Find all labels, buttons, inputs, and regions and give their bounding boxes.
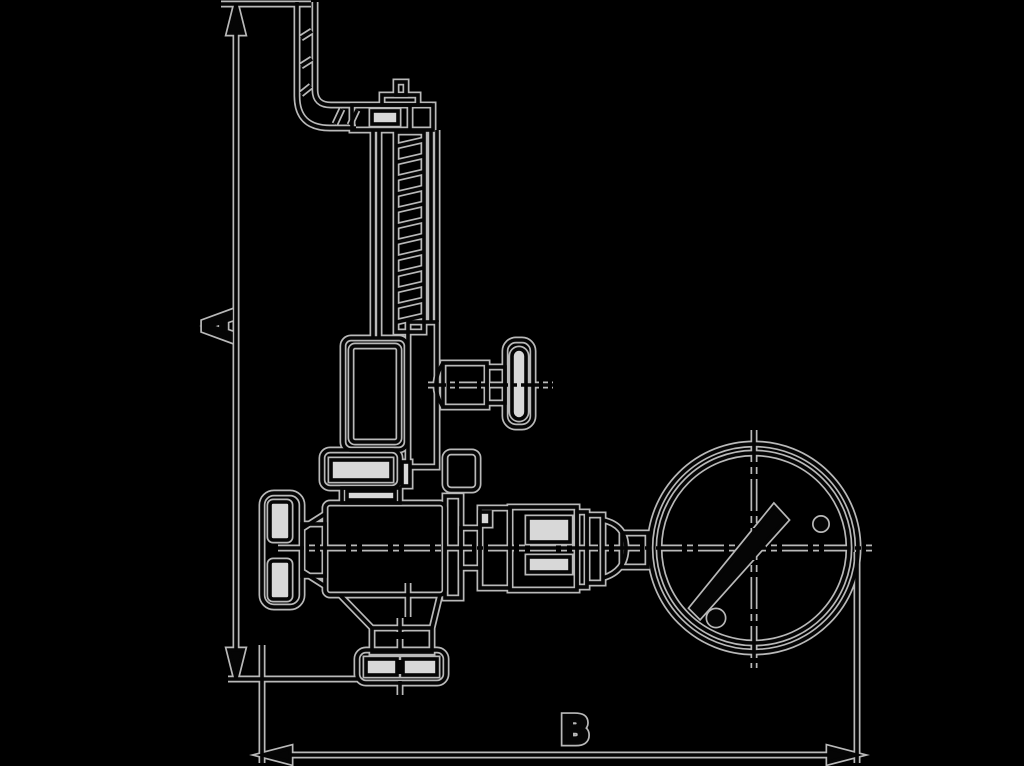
valve-technical-drawing: A B [0,0,1024,766]
drawing-canvas: A B [0,0,1024,766]
